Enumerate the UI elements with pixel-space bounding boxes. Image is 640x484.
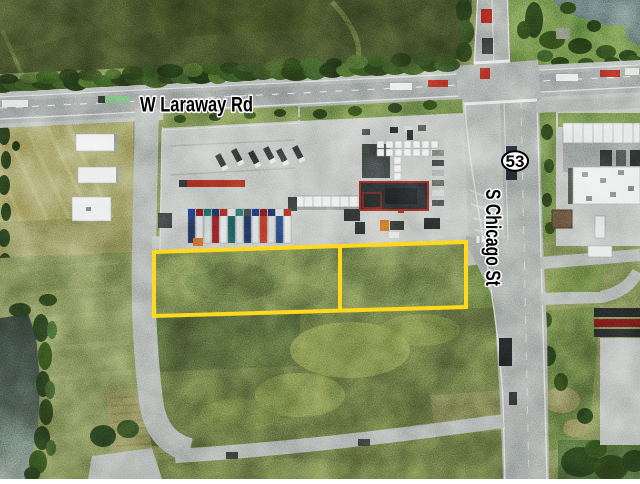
- svg-text:S Chicago St: S Chicago St: [481, 189, 504, 286]
- svg-text:53: 53: [506, 152, 525, 171]
- svg-text:W Laraway Rd: W Laraway Rd: [140, 93, 253, 117]
